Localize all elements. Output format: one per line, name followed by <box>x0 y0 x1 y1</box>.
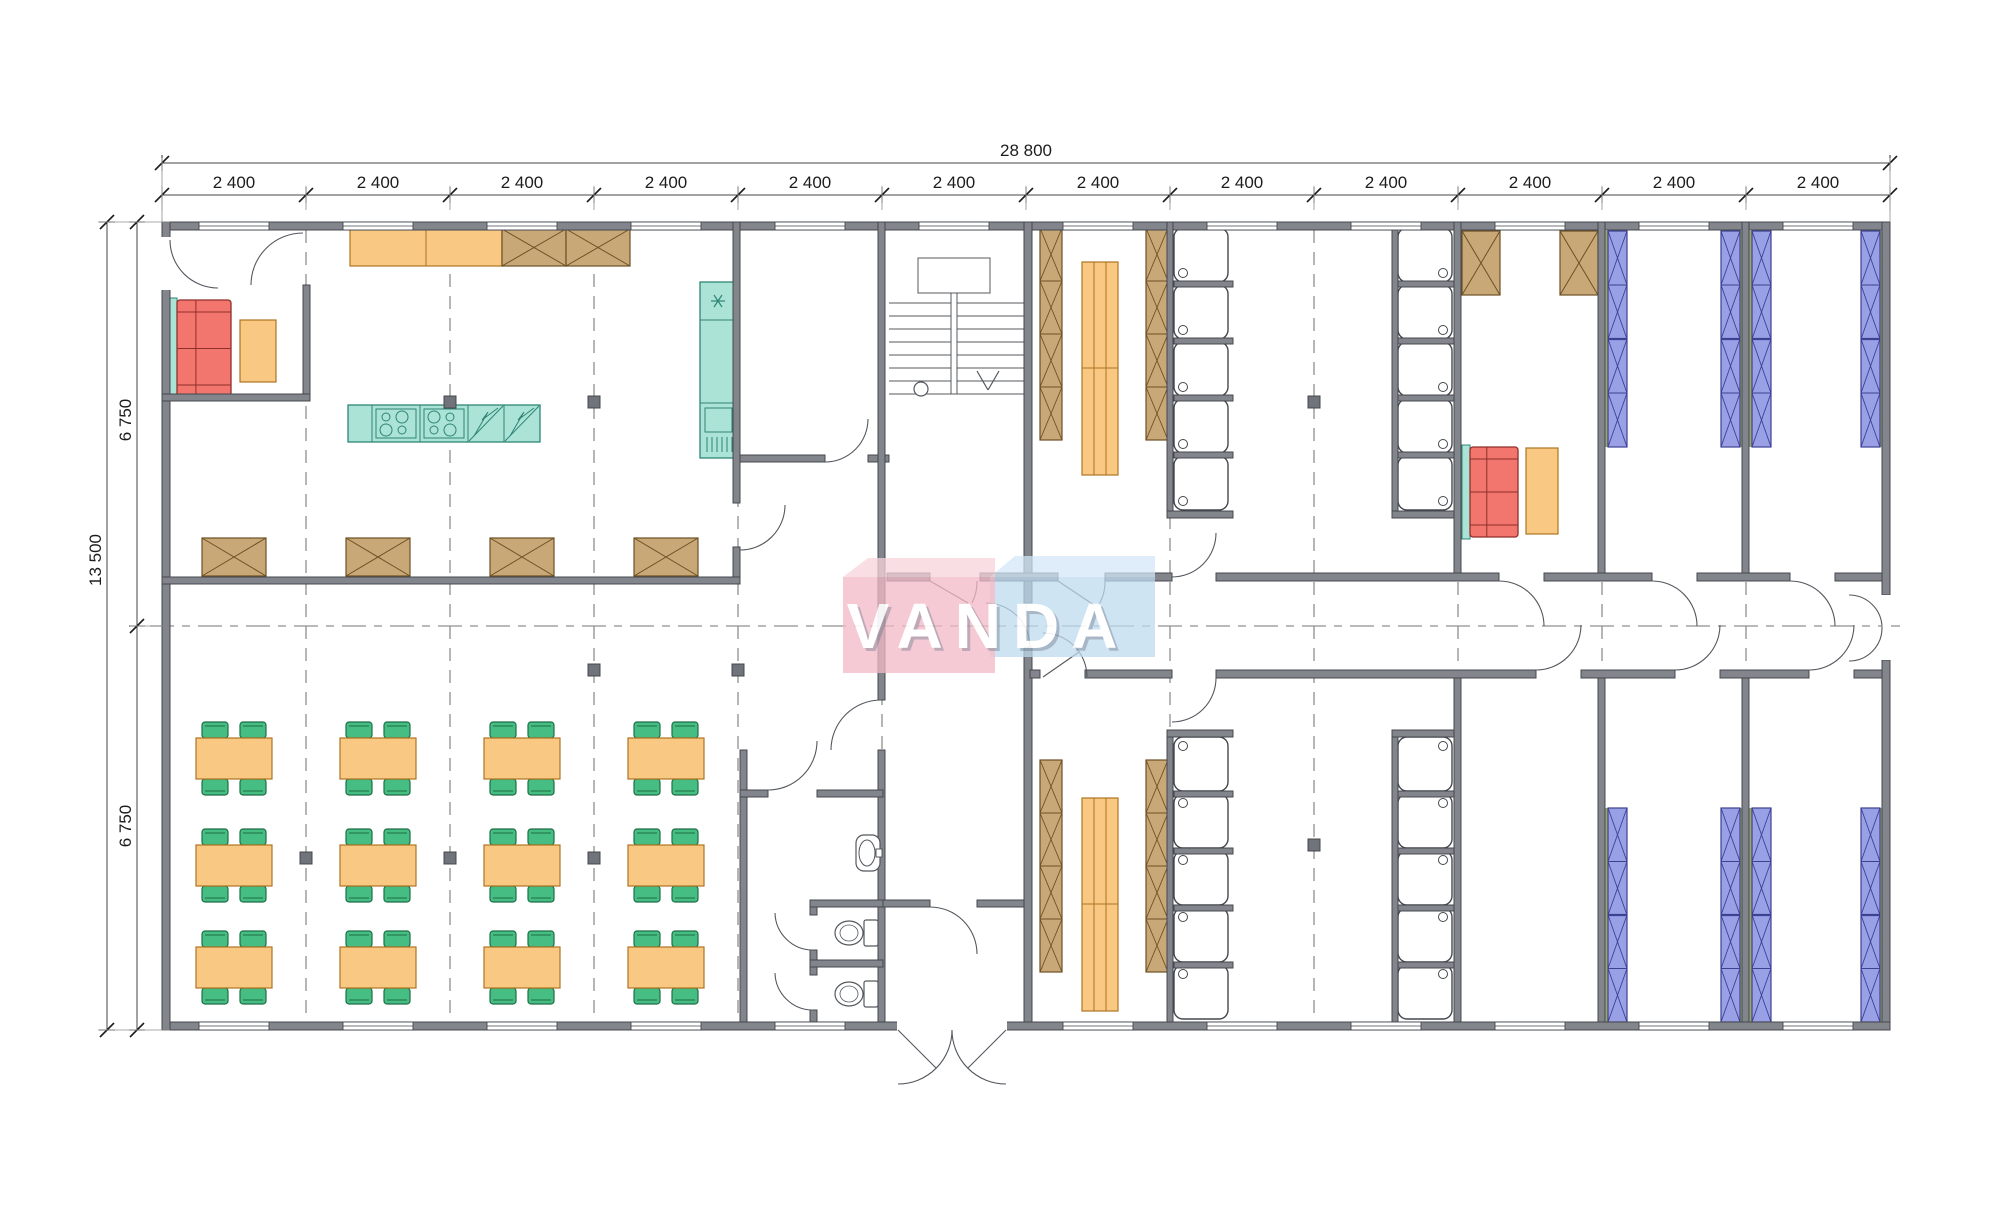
kitchen-wall-counter <box>350 229 502 266</box>
wall <box>1167 730 1233 737</box>
dining-table-group <box>340 829 416 902</box>
structural-column <box>1308 839 1320 851</box>
washbasin <box>856 835 882 871</box>
wall <box>810 960 883 967</box>
wardrobe <box>1462 231 1500 295</box>
wall <box>1216 670 1536 678</box>
door-swing-arc <box>825 419 868 462</box>
structural-column <box>1308 396 1320 408</box>
shower-stall <box>1174 285 1228 339</box>
wall <box>1398 848 1458 854</box>
wall <box>1854 670 1882 678</box>
window <box>775 1022 845 1030</box>
wall <box>977 900 1024 907</box>
shower-stall <box>1174 342 1228 396</box>
staircase-flight <box>889 258 1030 396</box>
wall <box>810 907 817 915</box>
window <box>1639 222 1709 230</box>
wall <box>1174 905 1233 911</box>
wall <box>1398 905 1458 911</box>
toilet <box>835 981 878 1007</box>
dining-table-group <box>628 931 704 1004</box>
shower-stall <box>1174 737 1228 791</box>
window <box>1351 1022 1421 1030</box>
structural-column <box>588 664 600 676</box>
door-leaf <box>898 1030 936 1068</box>
shower-drain <box>1179 383 1188 392</box>
wall <box>1454 222 1461 573</box>
door-swing-arc <box>1849 628 1882 661</box>
wall <box>1024 647 1032 1022</box>
shower-drain <box>1439 326 1448 335</box>
dim-bay-2: 2 400 <box>357 173 400 192</box>
storage-crate <box>634 538 698 576</box>
shower-drain <box>1179 799 1188 808</box>
dining-table-group <box>340 722 416 795</box>
wall <box>1882 222 1890 595</box>
wall <box>1174 962 1233 968</box>
dim-bay-8: 2 400 <box>1221 173 1264 192</box>
structural-column <box>300 852 312 864</box>
wall <box>1398 452 1458 458</box>
door-swing-arc <box>775 973 813 1010</box>
wall <box>810 900 883 907</box>
wall <box>1398 962 1458 968</box>
shower-stall <box>1398 456 1452 510</box>
wall <box>810 950 817 960</box>
wall <box>1742 222 1749 573</box>
wall <box>1167 737 1173 1022</box>
door-swing-arc <box>740 505 785 550</box>
door-swing-arc <box>170 240 218 288</box>
door-swing-arc <box>1172 533 1216 577</box>
staircase <box>889 258 1030 396</box>
window <box>487 1022 557 1030</box>
wall <box>1454 678 1461 1022</box>
wall <box>810 967 817 975</box>
door-swing-arc <box>1536 625 1581 670</box>
window <box>1063 222 1133 230</box>
window <box>1495 1022 1565 1030</box>
dim-bay-6: 2 400 <box>933 173 976 192</box>
dim-side-lower: 6 750 <box>116 805 135 848</box>
door-swing-arc <box>1499 581 1544 626</box>
wall <box>162 1022 1890 1030</box>
wall <box>1398 395 1458 401</box>
shower-drain <box>1439 269 1448 278</box>
wall <box>1085 670 1172 678</box>
shower-stall <box>1174 908 1228 962</box>
wall <box>1835 573 1882 581</box>
dining-table-group <box>196 931 272 1004</box>
wall <box>162 394 310 401</box>
storage-crate <box>202 538 266 576</box>
structural-column <box>444 852 456 864</box>
kitchen-upper-cabinet <box>566 229 630 266</box>
shower-stall <box>1398 737 1452 791</box>
shower-stall <box>1174 399 1228 453</box>
dim-side-upper: 6 750 <box>116 399 135 442</box>
dining-table-group <box>340 931 416 1004</box>
door-opening <box>897 1021 1007 1031</box>
shower-stall <box>1174 851 1228 905</box>
shower-stall <box>1398 342 1452 396</box>
wall <box>1742 678 1749 1022</box>
wall <box>1398 338 1458 344</box>
sofa-lounge-left <box>169 298 231 399</box>
shower-stall <box>1398 851 1452 905</box>
shower-stall <box>1174 456 1228 510</box>
dim-bay-10: 2 400 <box>1509 173 1552 192</box>
wall <box>1174 395 1233 401</box>
locker-strip <box>1040 228 1062 440</box>
dim-bay-7: 2 400 <box>1077 173 1120 192</box>
storage-crate <box>346 538 410 576</box>
shower-stall <box>1398 399 1452 453</box>
shower-drain <box>1439 913 1448 922</box>
wall <box>1697 573 1790 581</box>
wall <box>1882 660 1890 1022</box>
shower-drain <box>1439 799 1448 808</box>
window <box>1351 222 1421 230</box>
wall <box>883 900 930 907</box>
bunk-bed-strip <box>1605 231 1627 447</box>
window <box>1207 222 1277 230</box>
shower-drain <box>1439 970 1448 979</box>
window <box>919 222 989 230</box>
shower-drain <box>1179 742 1188 751</box>
door-swing-arc <box>1652 581 1697 626</box>
window <box>199 1022 269 1030</box>
structural-column <box>588 852 600 864</box>
window <box>1639 1022 1709 1030</box>
wall <box>733 222 740 503</box>
window <box>1783 1022 1853 1030</box>
floor-plan-drawing: 28 8002 4002 4002 4002 4002 4002 4002 40… <box>0 0 2000 1216</box>
window <box>343 1022 413 1030</box>
window <box>199 222 269 230</box>
shower-drain <box>1439 440 1448 449</box>
dining-table-group <box>484 829 560 902</box>
bunk-bed-strip <box>1861 808 1883 1022</box>
locker-strip <box>1146 760 1168 972</box>
wall <box>1174 338 1233 344</box>
kitchen-upper-cabinet <box>502 229 566 266</box>
dim-bay-3: 2 400 <box>501 173 544 192</box>
wall <box>1398 281 1458 287</box>
door-swing-arc <box>768 741 817 790</box>
bunk-bed-strip <box>1861 231 1883 447</box>
locker-strip <box>1146 228 1168 440</box>
bunk-bed-strip <box>1749 808 1771 1022</box>
dining-table-group <box>628 829 704 902</box>
window <box>343 222 413 230</box>
shower-drain <box>1439 383 1448 392</box>
bunk-bed-strip <box>1721 231 1743 447</box>
dim-bay-5: 2 400 <box>789 173 832 192</box>
wardrobe <box>1560 231 1598 295</box>
dining-table-group <box>196 829 272 902</box>
dim-bay-12: 2 400 <box>1797 173 1840 192</box>
wall <box>1544 573 1652 581</box>
window <box>631 1022 701 1030</box>
window <box>1495 222 1565 230</box>
wall <box>1392 730 1460 737</box>
door-swing-arc <box>775 913 813 950</box>
shower-drain <box>1179 326 1188 335</box>
wall <box>162 222 170 238</box>
door-swing-arc <box>1849 595 1882 628</box>
shower-stall <box>1398 794 1452 848</box>
shower-stall <box>1398 228 1452 282</box>
door-swing-arc <box>251 233 303 285</box>
shower-drain <box>1179 970 1188 979</box>
wall <box>1392 511 1460 518</box>
window <box>631 222 701 230</box>
watermark: VANDAVANDA <box>843 556 1155 673</box>
wall <box>1174 281 1233 287</box>
wall <box>740 455 825 462</box>
wall <box>1167 222 1173 518</box>
wall <box>1030 670 1040 678</box>
dim-bay-4: 2 400 <box>645 173 688 192</box>
dining-table-group <box>628 722 704 795</box>
wall <box>740 790 768 797</box>
wall <box>1598 678 1605 1022</box>
shower-stall <box>1398 965 1452 1019</box>
sofa-lounge-right <box>1462 445 1518 539</box>
door-swing-arc <box>1675 625 1720 670</box>
window <box>487 222 557 230</box>
shower-stall <box>1174 794 1228 848</box>
wall <box>1167 511 1233 518</box>
wall <box>1174 848 1233 854</box>
shower-drain <box>1439 742 1448 751</box>
wall <box>1598 222 1605 573</box>
dim-top-total: 28 800 <box>1000 141 1052 160</box>
changing-bench <box>1082 262 1118 475</box>
door-swing-arc <box>1172 678 1216 722</box>
shower-drain <box>1179 913 1188 922</box>
window <box>1063 1022 1133 1030</box>
wall <box>162 577 740 584</box>
shower-drain <box>1439 497 1448 506</box>
wall <box>1174 791 1233 797</box>
window <box>775 222 845 230</box>
shower-stall <box>1398 908 1452 962</box>
dim-bay-11: 2 400 <box>1653 173 1696 192</box>
kitchen-island <box>348 405 540 442</box>
bunk-bed-strip <box>1721 808 1743 1022</box>
shower-drain <box>1179 856 1188 865</box>
dining-table-group <box>484 931 560 1004</box>
wall <box>817 790 883 797</box>
dim-bay-9: 2 400 <box>1365 173 1408 192</box>
dining-table-group <box>196 722 272 795</box>
shower-stall <box>1398 285 1452 339</box>
wall <box>810 1010 817 1022</box>
wall <box>1398 791 1458 797</box>
window <box>1207 1022 1277 1030</box>
dining-table-group <box>484 722 560 795</box>
sanitary-fixtures-layer <box>835 835 882 1007</box>
door-opening <box>161 237 171 290</box>
shower-stall <box>1174 228 1228 282</box>
shower-drain <box>1179 497 1188 506</box>
dim-bay-1: 2 400 <box>213 173 256 192</box>
dim-side-total: 13 500 <box>86 534 105 586</box>
fridge-freezer-unit <box>700 282 737 458</box>
door-swing-arc <box>1809 625 1854 670</box>
structural-column <box>588 396 600 408</box>
coffee-table-lounge-right <box>1526 448 1558 534</box>
wall <box>1720 670 1809 678</box>
shower-drain <box>1179 269 1188 278</box>
stair-newel-circle <box>914 382 928 396</box>
vanda-watermark: VANDAVANDA <box>843 556 1155 673</box>
watermark-text: VANDA <box>847 590 1130 662</box>
door-swing-arc <box>930 907 977 954</box>
wall <box>303 285 310 394</box>
bunk-bed-strip <box>1749 231 1771 447</box>
wall <box>1024 222 1032 603</box>
floor-plan-page: 28 8002 4002 4002 4002 4002 4002 4002 40… <box>0 0 2000 1216</box>
bunk-bed-strip <box>1605 808 1627 1022</box>
wall <box>1392 737 1398 1022</box>
toilet <box>835 920 878 946</box>
coffee-table-lounge-left <box>240 320 276 382</box>
changing-bench <box>1082 798 1118 1011</box>
structural-column <box>732 664 744 676</box>
locker-strip <box>1040 760 1062 972</box>
storage-crate <box>490 538 554 576</box>
shower-drain <box>1439 856 1448 865</box>
shower-drain <box>1179 440 1188 449</box>
wall <box>1392 222 1398 518</box>
door-leaf <box>968 1030 1006 1068</box>
wall <box>1216 573 1499 581</box>
window <box>1783 222 1853 230</box>
wall <box>1174 452 1233 458</box>
structural-column <box>444 396 456 408</box>
door-swing-arc <box>1790 581 1835 626</box>
door-swing-arc <box>831 700 881 750</box>
wall <box>1581 670 1675 678</box>
shower-stall <box>1174 965 1228 1019</box>
